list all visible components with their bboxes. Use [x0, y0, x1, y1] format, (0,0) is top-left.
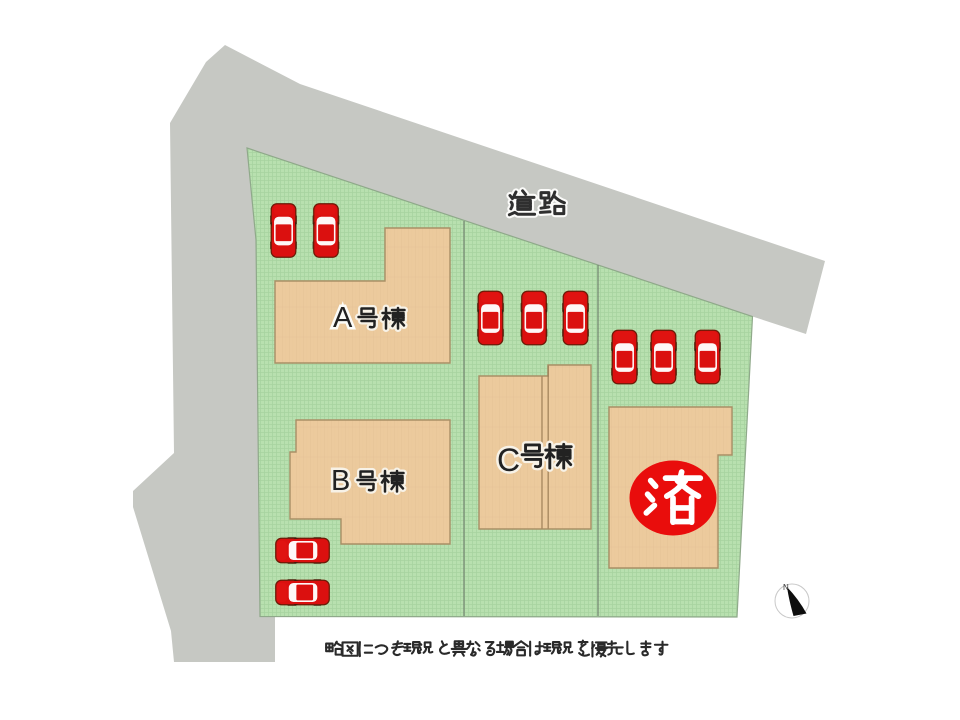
svg-text:B: B: [331, 465, 350, 497]
svg-text:N: N: [783, 583, 789, 592]
svg-text:A: A: [333, 302, 353, 334]
svg-text:C: C: [497, 442, 520, 478]
